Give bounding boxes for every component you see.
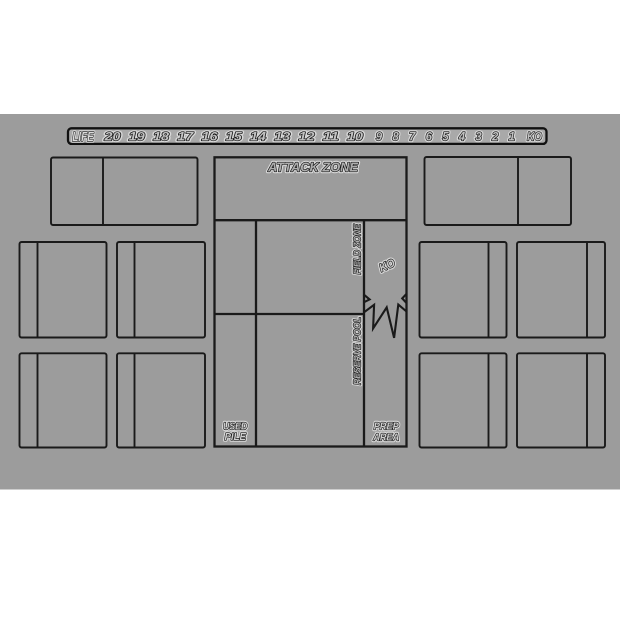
svg-text:RESERVE POOL: RESERVE POOL [351, 317, 363, 385]
svg-text:11: 11 [323, 131, 339, 143]
svg-text:12: 12 [299, 131, 316, 143]
svg-text:AREA: AREA [372, 432, 399, 444]
svg-text:7: 7 [409, 131, 416, 143]
svg-text:LIFE: LIFE [72, 129, 94, 144]
svg-text:16: 16 [202, 131, 219, 143]
svg-text:2: 2 [491, 131, 499, 143]
svg-text:PILE: PILE [224, 431, 246, 443]
svg-text:6: 6 [426, 131, 433, 143]
svg-text:9: 9 [376, 131, 383, 143]
svg-text:8: 8 [392, 131, 399, 143]
svg-text:FIELD ZONE: FIELD ZONE [351, 223, 363, 274]
svg-text:14: 14 [250, 131, 267, 143]
svg-text:15: 15 [226, 131, 243, 143]
svg-text:1: 1 [509, 131, 515, 143]
svg-text:3: 3 [475, 131, 482, 143]
svg-text:19: 19 [129, 131, 146, 143]
svg-text:13: 13 [274, 131, 291, 143]
svg-text:4: 4 [458, 131, 466, 143]
svg-text:17: 17 [177, 131, 194, 143]
svg-text:18: 18 [153, 131, 170, 143]
svg-text:ATTACK ZONE: ATTACK ZONE [267, 159, 358, 174]
svg-text:5: 5 [442, 131, 449, 143]
svg-text:KO: KO [527, 131, 542, 143]
svg-text:20: 20 [103, 131, 121, 143]
svg-text:10: 10 [347, 131, 364, 143]
